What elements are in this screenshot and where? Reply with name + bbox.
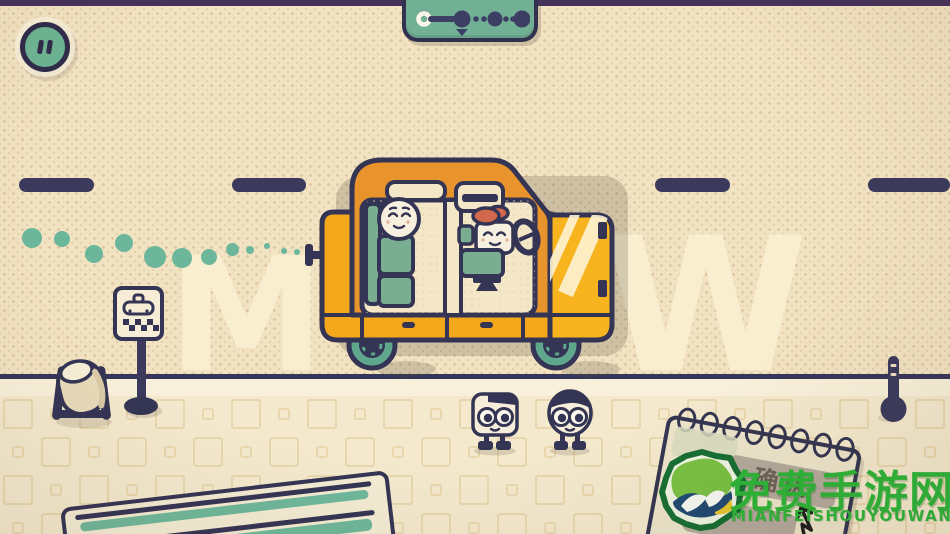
- floor-tile: [117, 437, 147, 467]
- game-screen: M W: [0, 0, 950, 534]
- trail-dot: [281, 248, 287, 254]
- trail-dot: [172, 248, 192, 268]
- floor-tile: [535, 475, 565, 505]
- road-dash: [868, 178, 950, 192]
- route-end-node: [514, 11, 531, 28]
- floor-tile: [506, 484, 518, 496]
- cylinder-bin: [46, 352, 120, 430]
- driver-headrest: [459, 226, 473, 244]
- floor-tile: [620, 522, 632, 534]
- route-start-node: [419, 14, 430, 25]
- driver-seat: [461, 250, 503, 276]
- floor-tile: [126, 484, 138, 496]
- trail-dot: [115, 234, 133, 252]
- route-next-node: [488, 12, 503, 27]
- floor-tile: [810, 408, 822, 420]
- floor-tile: [620, 446, 632, 458]
- camper-van[interactable]: [295, 150, 645, 380]
- route-progress-sign: [402, 0, 538, 42]
- floor-tile: [839, 399, 869, 429]
- floor-tile: [354, 408, 366, 420]
- trail-dot: [85, 245, 103, 263]
- floor-tile: [421, 513, 451, 534]
- watermark-subtitle: MIANFEISHOUYOUWANG: [731, 507, 950, 525]
- floor-tile: [41, 437, 71, 467]
- floor-tile: [307, 399, 337, 429]
- floor-tile: [231, 399, 261, 429]
- floor-tile: [316, 446, 328, 458]
- floor-tile: [421, 437, 451, 467]
- triangle-marker-icon: [456, 29, 468, 36]
- trail-dot: [144, 246, 166, 268]
- road-dash: [655, 178, 730, 192]
- red-capped-driver[interactable]: [473, 207, 513, 255]
- floor-tile: [12, 446, 24, 458]
- floor-tile: [3, 475, 33, 505]
- thermometer-icon: [872, 352, 916, 426]
- interior-divider: [445, 200, 461, 315]
- round-head-passenger[interactable]: [379, 199, 419, 239]
- floor-tile: [544, 522, 556, 534]
- floor-tile: [79, 475, 109, 505]
- floor-tile: [459, 475, 489, 505]
- round-head-character[interactable]: [545, 388, 595, 456]
- floor-tile: [497, 513, 527, 534]
- floor-tile: [430, 484, 442, 496]
- pause-icon: [37, 40, 44, 55]
- floor-tile: [573, 513, 603, 534]
- pause-icon: [46, 40, 53, 55]
- road-dash: [19, 178, 94, 192]
- floor-tile: [240, 446, 252, 458]
- floor-tile: [3, 399, 33, 429]
- trail-dot: [22, 228, 42, 248]
- route-progress-track: [410, 1, 530, 37]
- pause-button[interactable]: [20, 22, 70, 72]
- sign-post: [137, 332, 146, 408]
- floor-tile: [202, 408, 214, 420]
- floor-tile: [164, 446, 176, 458]
- floor-tile: [611, 399, 641, 429]
- floor-tile: [193, 437, 223, 467]
- floor-tile: [611, 475, 641, 505]
- floor-tile: [345, 437, 375, 467]
- floor-tile: [430, 408, 442, 420]
- floor-tile: [383, 399, 413, 429]
- trail-dot: [54, 231, 70, 247]
- floor-tile: [50, 484, 62, 496]
- floor-tile: [278, 408, 290, 420]
- floor-tile: [392, 446, 404, 458]
- trail-dot: [264, 243, 270, 249]
- floor-tile: [269, 437, 299, 467]
- floor-tile: [468, 522, 480, 534]
- trail-dot: [201, 249, 217, 265]
- floor-tile: [88, 446, 100, 458]
- floor-tile: [915, 399, 945, 429]
- square-head-character[interactable]: [468, 390, 522, 456]
- route-current-node: [454, 11, 471, 28]
- floor-tile: [582, 484, 594, 496]
- trail-dot: [226, 243, 239, 256]
- floor-tile: [12, 522, 24, 534]
- trail-dot: [246, 246, 254, 254]
